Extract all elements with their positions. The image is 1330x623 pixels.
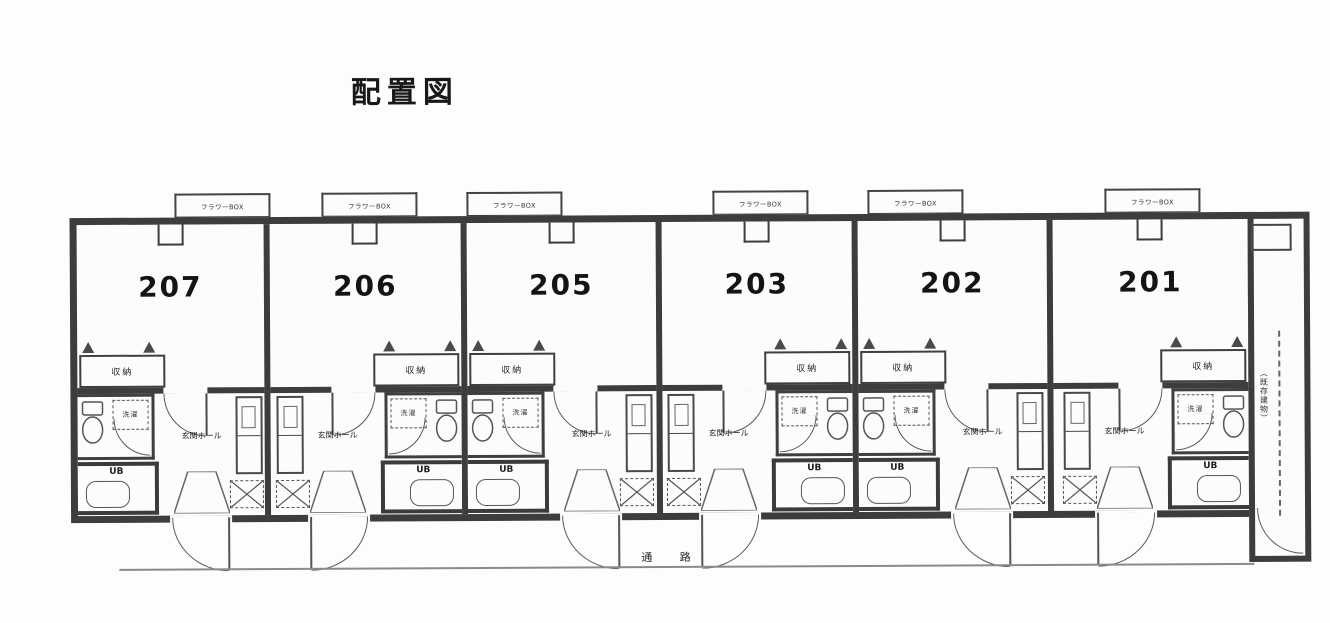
closet-box: 収納: [79, 355, 165, 388]
closet-door-mark: [835, 338, 847, 349]
closet-door-mark: [472, 340, 484, 351]
annex-dashed-line: [1278, 331, 1281, 516]
water-room: 洗濯: [467, 392, 544, 458]
toilet-icon: [860, 396, 886, 444]
entry-step: [955, 467, 1011, 509]
room-number-label: 203: [662, 267, 852, 301]
divider-wall: [988, 383, 1047, 389]
water-room: 洗濯: [384, 392, 461, 458]
floor-plan-sheet: 配置図 フラワーBOX フラワーBOX フラワーBOX フラワーBOX フラワー…: [0, 0, 1330, 623]
window-column: [1137, 219, 1163, 240]
mini-kitchen: [235, 396, 262, 474]
entry-step: [564, 469, 620, 511]
closet-box: 収納: [764, 351, 850, 384]
entry-step: [174, 471, 230, 513]
unit-bath-label: UB: [468, 465, 545, 475]
entrance-hall-label: 玄関ホール: [166, 430, 238, 441]
unit-geometry: 収納 洗濯 UB 玄関ホール: [1053, 219, 1250, 511]
bathtub: [1197, 475, 1241, 502]
closet-door-mark: [863, 338, 875, 349]
meter-box: [667, 478, 701, 506]
meter-box-cross: [1012, 477, 1044, 503]
room-number-label: 202: [858, 266, 1047, 300]
closet-door-mark: [1170, 336, 1182, 347]
closet-label: 収納: [796, 361, 818, 374]
closet-box: 収納: [373, 353, 459, 386]
entry-door-arc: [702, 515, 759, 569]
water-room-door-arc: [389, 417, 426, 454]
water-room: 洗濯: [775, 390, 852, 456]
room-number-label: 207: [77, 270, 264, 304]
water-room-door-arc: [1176, 413, 1213, 450]
water-room-door-arc: [895, 415, 932, 452]
unit-bath-label: UB: [859, 463, 936, 473]
annex-top-box: [1252, 224, 1292, 251]
closet-door-mark: [924, 338, 936, 349]
page-title: 配置図: [351, 67, 459, 112]
unit-geometry: 収納 洗濯 UB 玄関ホール: [77, 224, 266, 516]
unit-bath: UB: [859, 458, 940, 511]
walkway-label: 通 路: [641, 549, 703, 565]
water-room-door-arc: [504, 417, 541, 454]
unit-bath-label: UB: [385, 465, 462, 475]
toilet-icon: [824, 396, 850, 444]
mini-kitchen: [1016, 392, 1043, 470]
closet-box: 収納: [1160, 349, 1246, 382]
flower-box-label: フラワーBOX: [1131, 196, 1174, 206]
divider-wall: [207, 387, 264, 393]
divider-wall: [270, 387, 331, 393]
closet-door-mark: [774, 338, 786, 349]
unit-bath: UB: [772, 458, 853, 511]
bathtub: [476, 479, 520, 506]
entry-step: [701, 469, 757, 511]
unit-bath-label: UB: [776, 463, 853, 473]
entry-step: [310, 471, 366, 513]
mini-kitchen: [1063, 392, 1090, 470]
entrance-hall-label: 玄関ホール: [302, 430, 374, 441]
entrance-hall-label: 玄関ホール: [693, 427, 765, 438]
unit-geometry: 収納 洗濯 UB 玄関ホール: [270, 223, 463, 515]
room-number-label: 205: [467, 268, 656, 302]
divider-wall: [597, 385, 656, 391]
unit-geometry: 収納 洗濯 UB 玄関ホール: [662, 221, 854, 513]
annex-note-label: （既存建物）: [1258, 369, 1269, 423]
unit-bath: UB: [78, 462, 159, 515]
unit: 収納 洗濯 UB 玄関ホール: [467, 222, 664, 514]
entry-door-arc: [311, 517, 368, 571]
closet-door-mark: [533, 340, 545, 351]
unit: 収納 洗濯 UB 玄関ホール: [662, 221, 860, 513]
entrance-hall-label: 玄関ホール: [947, 426, 1019, 437]
water-room-door-arc: [780, 415, 817, 452]
unit: 収納 洗濯 UB 玄関ホール: [858, 220, 1055, 512]
meter-box-cross: [668, 479, 700, 505]
meter-box: [230, 480, 264, 508]
entrance-hall-label: 玄関ホール: [556, 428, 628, 439]
flower-box-label: フラワーBOX: [201, 201, 244, 211]
bathtub: [410, 479, 454, 506]
bathtub: [86, 481, 130, 508]
window-column: [548, 222, 574, 243]
closet-box: 収納: [469, 353, 555, 386]
closet-label: 収納: [892, 361, 914, 374]
unit-bath: UB: [1168, 456, 1249, 509]
mini-kitchen: [276, 396, 303, 474]
divider-wall: [662, 385, 722, 391]
flower-box-row: フラワーBOX フラワーBOX フラワーBOX フラワーBOX フラワーBOX …: [0, 0, 1328, 3]
unit-bath: UB: [381, 460, 462, 513]
window-column: [744, 221, 770, 242]
entry-door-arc: [562, 515, 619, 569]
closet-door-mark: [143, 342, 155, 353]
room-number-label: 201: [1053, 265, 1248, 299]
meter-box-cross: [621, 479, 653, 505]
flower-box-label: フラワーBOX: [348, 200, 391, 210]
room-number-label: 206: [270, 269, 461, 303]
closet-door-mark: [1231, 336, 1243, 347]
flower-box-label: フラワーBOX: [894, 197, 937, 207]
flower-box-label: フラワーBOX: [493, 199, 536, 209]
entrance-hall-label: 玄関ホール: [1089, 425, 1161, 436]
bathtub: [801, 477, 845, 504]
unit: 収納 洗濯 UB 玄関ホール: [270, 223, 469, 515]
flower-box-label: フラワーBOX: [739, 198, 782, 208]
closet-box: 収納: [860, 351, 946, 384]
unit-bath: UB: [468, 460, 549, 513]
meter-box: [620, 478, 654, 506]
toilet-icon: [79, 400, 105, 448]
window-column: [157, 225, 183, 246]
annex-door-arc: [1257, 508, 1303, 554]
water-room: 洗濯: [858, 390, 935, 456]
mini-kitchen: [625, 394, 652, 472]
closet-door-mark: [82, 342, 94, 353]
water-room-door-arc: [114, 419, 151, 456]
toilet-icon: [469, 398, 495, 446]
meter-box: [1011, 476, 1045, 504]
entry-door-arc: [172, 517, 229, 571]
unit: 収納 洗濯 UB 玄関ホール: [77, 224, 272, 516]
building-outline: 収納 洗濯 UB 玄関ホール: [70, 212, 1257, 523]
water-room: 洗濯: [77, 394, 154, 460]
entry-step: [1097, 466, 1153, 508]
water-room: 洗濯: [1171, 388, 1248, 454]
meter-box-cross: [231, 481, 263, 507]
closet-label: 収納: [111, 365, 133, 378]
unit-geometry: 収納 洗濯 UB 玄関ホール: [858, 220, 1049, 512]
closet-door-mark: [383, 340, 395, 351]
unit-bath-label: UB: [78, 467, 155, 477]
closet-label: 収納: [1192, 359, 1214, 372]
mini-kitchen: [667, 394, 694, 472]
window-column: [352, 224, 378, 245]
stair-annex: （既存建物）: [1247, 212, 1311, 562]
window-column: [939, 220, 965, 241]
unit-geometry: 収納 洗濯 UB 玄関ホール: [467, 222, 658, 514]
toilet-icon: [1220, 394, 1246, 442]
closet-label: 収納: [405, 363, 427, 376]
bathtub: [867, 477, 911, 504]
entry-door-arc: [1098, 512, 1155, 566]
unit-bath-label: UB: [1172, 461, 1249, 471]
divider-wall: [1053, 383, 1118, 389]
closet-label: 収納: [501, 363, 523, 376]
meter-box-cross: [1064, 477, 1096, 503]
unit: 収納 洗濯 UB 玄関ホール: [1053, 219, 1250, 511]
meter-box: [276, 480, 310, 508]
closet-door-mark: [444, 340, 456, 351]
meter-box: [1063, 476, 1097, 504]
meter-box-cross: [277, 481, 309, 507]
toilet-icon: [433, 398, 459, 446]
entry-door-arc: [953, 513, 1010, 567]
